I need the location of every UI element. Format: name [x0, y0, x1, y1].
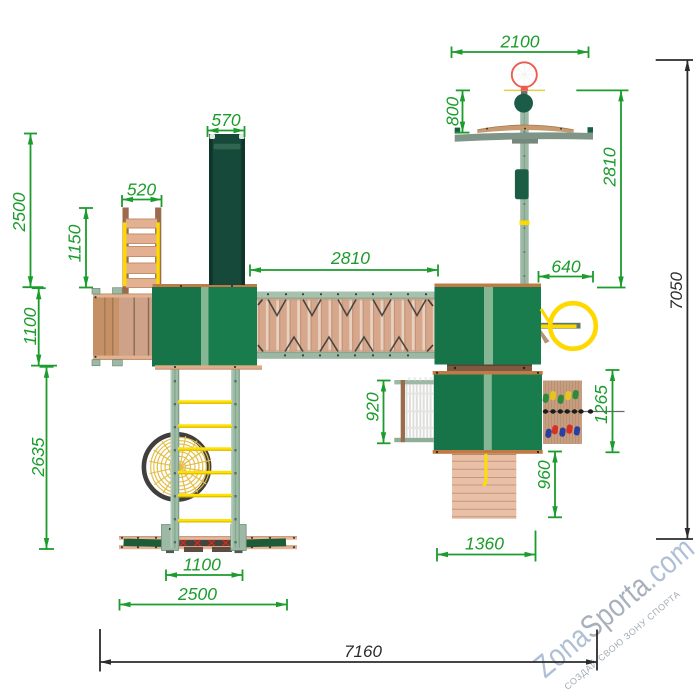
svg-text:2100: 2100 — [500, 32, 540, 52]
svg-text:1100: 1100 — [183, 555, 221, 575]
svg-text:520: 520 — [127, 180, 156, 200]
svg-text:7160: 7160 — [344, 642, 382, 661]
svg-text:2500: 2500 — [177, 584, 217, 604]
svg-text:2810: 2810 — [330, 248, 370, 268]
svg-text:800: 800 — [443, 97, 463, 126]
svg-text:1100: 1100 — [20, 307, 40, 345]
svg-text:960: 960 — [534, 460, 554, 489]
svg-text:920: 920 — [363, 392, 383, 421]
svg-text:2635: 2635 — [28, 437, 48, 477]
svg-text:7050: 7050 — [667, 272, 686, 310]
svg-text:1150: 1150 — [65, 224, 85, 262]
svg-text:640: 640 — [551, 257, 580, 277]
svg-text:2810: 2810 — [600, 147, 620, 187]
svg-text:1360: 1360 — [465, 534, 504, 554]
svg-text:2500: 2500 — [9, 192, 29, 232]
svg-text:1265: 1265 — [591, 385, 611, 424]
svg-text:570: 570 — [211, 110, 240, 130]
